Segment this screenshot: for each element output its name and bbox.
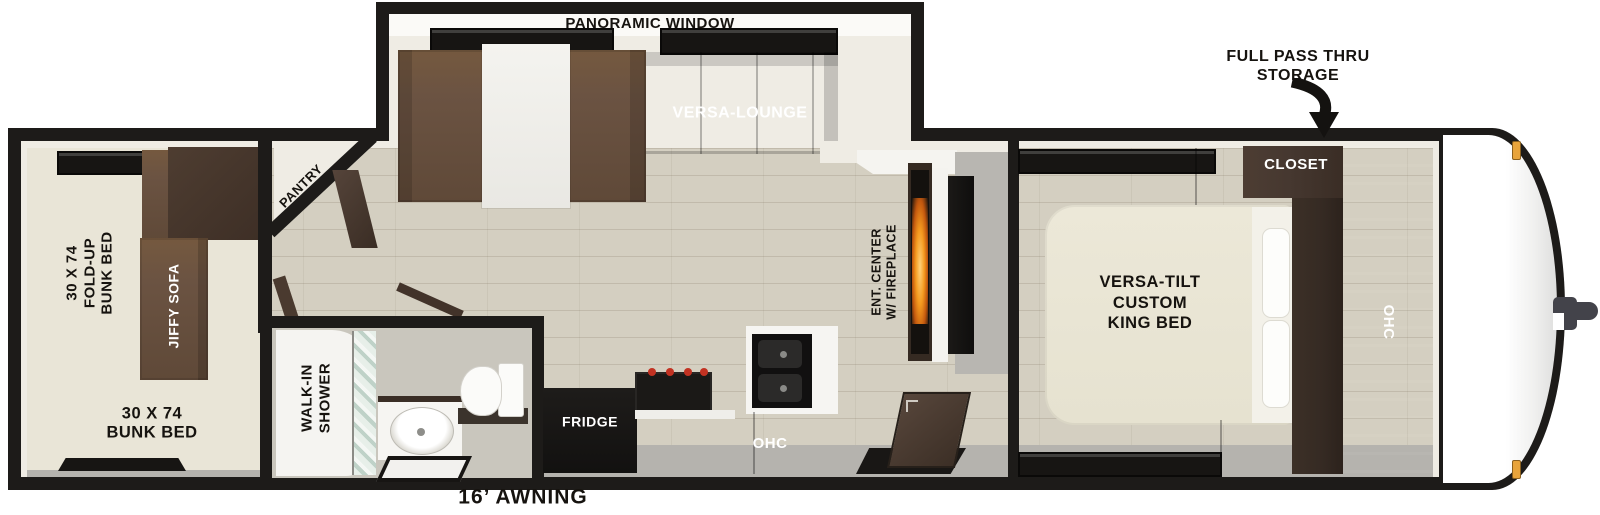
toilet-bowl: [460, 366, 502, 416]
hitch-arm: [1572, 302, 1598, 320]
fireplace-flame: [912, 198, 928, 324]
sink-faucet: [780, 385, 787, 392]
sink-drain: [417, 428, 425, 436]
bunk-room-divider-wall: [258, 141, 272, 333]
pillow: [1262, 228, 1290, 318]
stove-knob: [666, 368, 674, 376]
bath-mat: [376, 456, 472, 482]
shower-glass-door: [352, 331, 376, 475]
kitchen-ohc-label: OHC: [753, 435, 788, 453]
bed-foot-bench: [1150, 420, 1292, 458]
jiffy-sofa-label: JIFFY SOFA: [166, 264, 183, 349]
hitch-jaw-notch: [1553, 313, 1564, 330]
ent-center-label: ENT. CENTER W/ FIREPLACE: [869, 224, 899, 320]
stove-knob: [648, 368, 656, 376]
bedroom-side-cabinet: [1292, 198, 1343, 474]
floorplan-canvas: PANORAMIC WINDOW VERSA-LOUNGE JIFFY SOFA…: [0, 0, 1600, 515]
stove-cooktop: [635, 372, 712, 412]
stove-knob: [684, 368, 692, 376]
tv: [948, 176, 974, 354]
marker-light-top: [1512, 141, 1521, 160]
bedroom-overhead-cabinet: [1148, 148, 1245, 206]
bunk-room-step: [58, 458, 186, 471]
versa-lounge-label: VERSA-LOUNGE: [673, 105, 808, 124]
marker-light-bottom: [1512, 460, 1521, 479]
ent-center-panel: [932, 168, 948, 362]
walk-in-shower-label: WALK-IN SHOWER: [298, 363, 333, 434]
bunk-table: [168, 147, 258, 240]
bedroom-divider-wall: [1008, 141, 1019, 477]
king-bed-label: VERSA-TILT CUSTOM KING BED: [1100, 272, 1201, 334]
table-mat: [482, 44, 570, 208]
panoramic-window-right: [660, 28, 838, 55]
pillow: [1262, 320, 1290, 408]
fold-up-bunk-label: 30 X 74 FOLD-UP BUNK BED: [63, 231, 116, 314]
storage-arrow-icon: [1282, 78, 1346, 142]
closet-label: CLOSET: [1264, 156, 1328, 174]
sink-faucet: [780, 351, 787, 358]
bunk-bed-label: 30 X 74 BUNK BED: [106, 405, 197, 444]
kitchen-ohc-cabinet: [641, 412, 859, 474]
versa-lounge: [646, 52, 838, 154]
door-handle: [906, 400, 918, 412]
fridge: [543, 388, 637, 473]
bedroom-ohc-label: OHC: [1379, 305, 1397, 340]
awning-label: 16’ AWNING: [458, 486, 587, 511]
stove-knob: [700, 368, 708, 376]
fridge-label: FRIDGE: [562, 414, 618, 431]
